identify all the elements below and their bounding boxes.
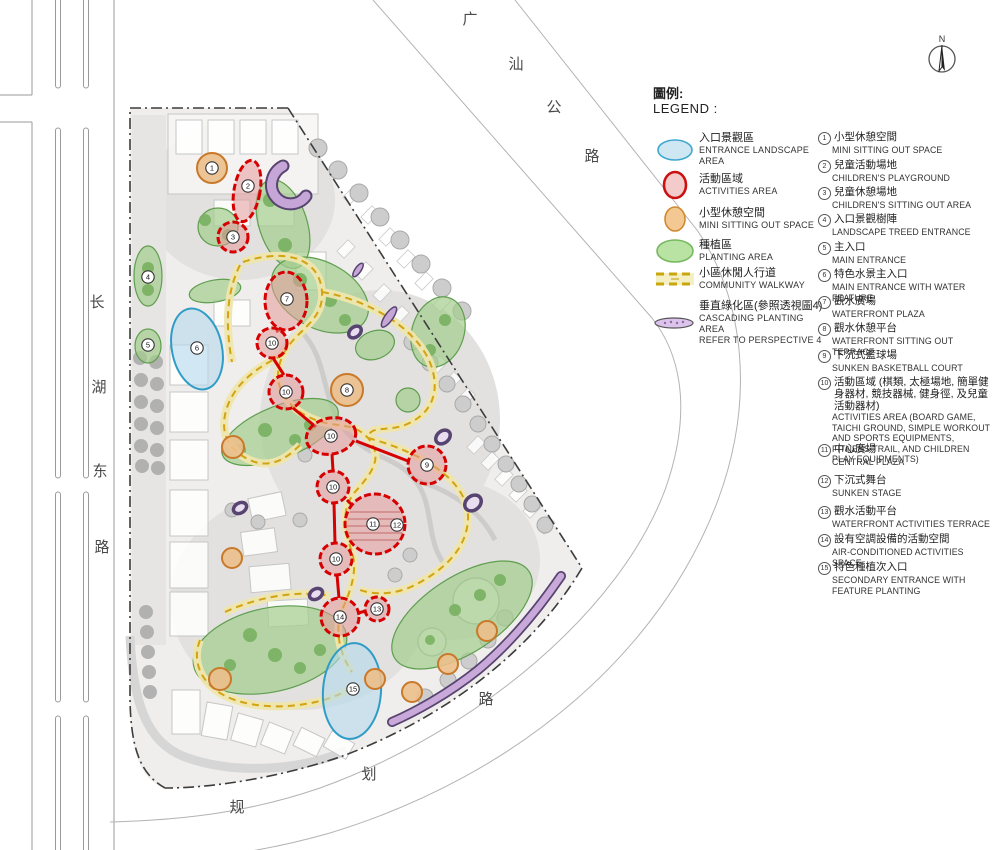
road-label-char: 广 — [462, 11, 477, 28]
key-zh: 觀水活動平台 — [831, 505, 897, 517]
key-item-1: 1 小型休憩空間 MINI SITTING OUT SPACE — [818, 131, 994, 156]
key-number: 14 — [818, 534, 831, 547]
key-zh: 設有空調設備的活動空間 — [831, 533, 950, 545]
key-item-13: 13 觀水活動平台 WATERFRONT ACTIVITIES TERRACE — [818, 505, 994, 530]
road-label-char: 路 — [584, 148, 599, 165]
entrance-area-icon — [653, 137, 697, 163]
key-zh: 下沉式籃球場 — [831, 349, 897, 361]
key-number: 8 — [818, 323, 831, 336]
key-en: WATERFRONT ACTIVITIES TERRACE — [832, 519, 994, 530]
mini-sitting-icon — [653, 205, 697, 233]
legend-item-planting: 種植區 PLANTING AREA — [653, 238, 773, 264]
key-en: MAIN ENTRANCE — [832, 255, 994, 266]
road-label-char: 划 — [361, 766, 376, 783]
key-number: 13 — [818, 506, 831, 519]
key-en: MINI SITTING OUT SPACE — [832, 145, 994, 156]
key-item-5: 5 主入口 MAIN ENTRANCE — [818, 241, 994, 266]
key-en: CHILDREN'S PLAYGROUND — [832, 173, 994, 184]
svg-text:10: 10 — [329, 483, 337, 492]
landscape-masterplan-page: { "north_label": "N", "legend": { "title… — [0, 0, 1000, 850]
svg-text:6: 6 — [195, 344, 199, 353]
changhu-east-road — [0, 0, 114, 850]
svg-text:7: 7 — [285, 295, 289, 304]
legend-label-zh: 小型休憩空間 — [699, 207, 814, 220]
key-item-9: 9 下沉式籃球場 SUNKEN BASKETBALL COURT — [818, 349, 994, 374]
key-item-7: 7 觀水廣場 WATERFRONT PLAZA — [818, 295, 994, 320]
key-zh: 特色種植次入口 — [831, 561, 908, 573]
svg-text:15: 15 — [349, 685, 357, 694]
svg-text:12: 12 — [393, 521, 401, 530]
key-zh: 入口景觀樹陣 — [831, 213, 897, 225]
key-item-4: 4 入口景觀樹陣 LANDSCAPE TREED ENTRANCE — [818, 213, 994, 238]
key-number: 9 — [818, 350, 831, 363]
svg-text:5: 5 — [146, 341, 150, 350]
key-zh: 兒童休憩場地 — [831, 186, 897, 198]
key-item-3: 3 兒童休憩場地 CHILDREN'S SITTING OUT AREA — [818, 186, 994, 211]
key-en: LANDSCAPE TREED ENTRANCE — [832, 227, 994, 238]
legend-item-walkway: 小區休閒人行道 COMMUNITY WALKWAY — [653, 267, 805, 291]
road-label-char: 规 — [229, 799, 244, 816]
legend-label-en: MINI SITTING OUT SPACE — [699, 220, 814, 231]
legend: 圖例: LEGEND : 入口景觀區 ENTRANCE LANDSCAPE AR… — [653, 86, 823, 116]
key-zh: 活動區域 (棋類, 太極場地, 簡單健身器材, 競技器械, 健身徑, 及兒童活動… — [831, 376, 994, 412]
legend-label-en2: REFER TO PERSPECTIVE 4 — [699, 335, 823, 346]
key-item-15: 15 特色種植次入口 SECONDARY ENTRANCE WITH FEATU… — [818, 561, 994, 596]
key-zh: 下沉式舞台 — [831, 474, 887, 486]
key-number: 4 — [818, 214, 831, 227]
planting-area-icon — [653, 238, 697, 264]
north-arrow: N — [921, 28, 963, 80]
key-number: 5 — [818, 242, 831, 255]
legend-label-zh: 活動區域 — [699, 173, 778, 186]
legend-label-en: CASCADING PLANTING AREA — [699, 313, 823, 335]
key-en: CHILDREN'S SITTING OUT AREA — [832, 200, 994, 211]
key-number: 11 — [818, 444, 831, 457]
community-walkway-icon — [653, 270, 697, 288]
legend-label-en: ACTIVITIES AREA — [699, 186, 778, 197]
key-number: 15 — [818, 562, 831, 575]
road-label-char: 长 — [89, 294, 104, 311]
road-label-char: 路 — [94, 539, 109, 556]
legend-label-en: ENTRANCE LANDSCAPE AREA — [699, 145, 823, 167]
svg-text:9: 9 — [425, 461, 429, 470]
key-number: 1 — [818, 132, 831, 145]
cascading-planting-icon — [653, 315, 697, 331]
svg-text:1: 1 — [210, 164, 214, 173]
legend-title-zh: 圖例: — [653, 86, 823, 101]
svg-text:14: 14 — [336, 613, 344, 622]
key-en: SUNKEN BASKETBALL COURT — [832, 363, 994, 374]
road-label-char: 公 — [546, 100, 561, 116]
key-number: 7 — [818, 296, 831, 309]
key-zh: 主入口 — [831, 241, 866, 253]
road-label-char: 东 — [92, 463, 107, 480]
legend-label-zh: 垂直綠化區(參照透視圖4) — [699, 300, 823, 313]
key-number: 12 — [818, 475, 831, 488]
legend-item-cascading: 垂直綠化區(參照透視圖4) CASCADING PLANTING AREA RE… — [653, 300, 823, 346]
key-zh: 觀水廣場 — [831, 295, 876, 307]
svg-text:10: 10 — [327, 432, 335, 441]
road-label-char: 汕 — [508, 56, 523, 73]
legend-item-entrance: 入口景觀區 ENTRANCE LANDSCAPE AREA — [653, 132, 823, 167]
svg-text:3: 3 — [231, 233, 235, 242]
key-zh: 兒童活動場地 — [831, 159, 897, 171]
key-zh: 觀水休憩平台 — [831, 322, 897, 334]
north-label: N — [939, 34, 946, 44]
key-en: SECONDARY ENTRANCE WITH FEATURE PLANTING — [832, 575, 994, 596]
legend-title-en: LEGEND : — [653, 101, 823, 116]
svg-text:10: 10 — [268, 339, 276, 348]
key-number: 6 — [818, 269, 831, 282]
key-zh: 特色水景主入口 — [831, 268, 908, 280]
legend-label-en: COMMUNITY WALKWAY — [699, 280, 805, 291]
key-zh: 中心廣場 — [831, 443, 876, 455]
svg-text:10: 10 — [282, 388, 290, 397]
legend-label-zh: 小區休閒人行道 — [699, 267, 805, 280]
legend-item-mini-sitting: 小型休憩空間 MINI SITTING OUT SPACE — [653, 205, 814, 233]
key-number: 10 — [818, 377, 831, 390]
svg-text:2: 2 — [246, 182, 250, 191]
legend-label-zh: 種植區 — [699, 239, 773, 252]
svg-text:11: 11 — [369, 520, 377, 529]
svg-text:10: 10 — [332, 555, 340, 564]
key-item-2: 2 兒童活動場地 CHILDREN'S PLAYGROUND — [818, 159, 994, 184]
key-en: SUNKEN STAGE — [832, 488, 994, 499]
legend-item-activities: 活動區域 ACTIVITIES AREA — [653, 170, 778, 200]
key-number: 2 — [818, 160, 831, 173]
activities-area-icon — [653, 170, 697, 200]
svg-text:13: 13 — [373, 605, 381, 614]
key-item-11: 11 中心廣場 CENTRAL PLAZA — [818, 443, 994, 468]
key-item-12: 12 下沉式舞台 SUNKEN STAGE — [818, 474, 994, 499]
road-label-char: 路 — [478, 691, 493, 708]
legend-label-zh: 入口景觀區 — [699, 132, 823, 145]
svg-text:8: 8 — [345, 386, 349, 395]
key-en: CENTRAL PLAZA — [832, 457, 994, 468]
key-zh: 小型休憩空間 — [831, 131, 897, 143]
svg-text:4: 4 — [146, 273, 150, 282]
key-number: 3 — [818, 187, 831, 200]
road-label-char: 湖 — [91, 379, 106, 396]
legend-label-en: PLANTING AREA — [699, 252, 773, 263]
key-en: WATERFRONT PLAZA — [832, 309, 994, 320]
